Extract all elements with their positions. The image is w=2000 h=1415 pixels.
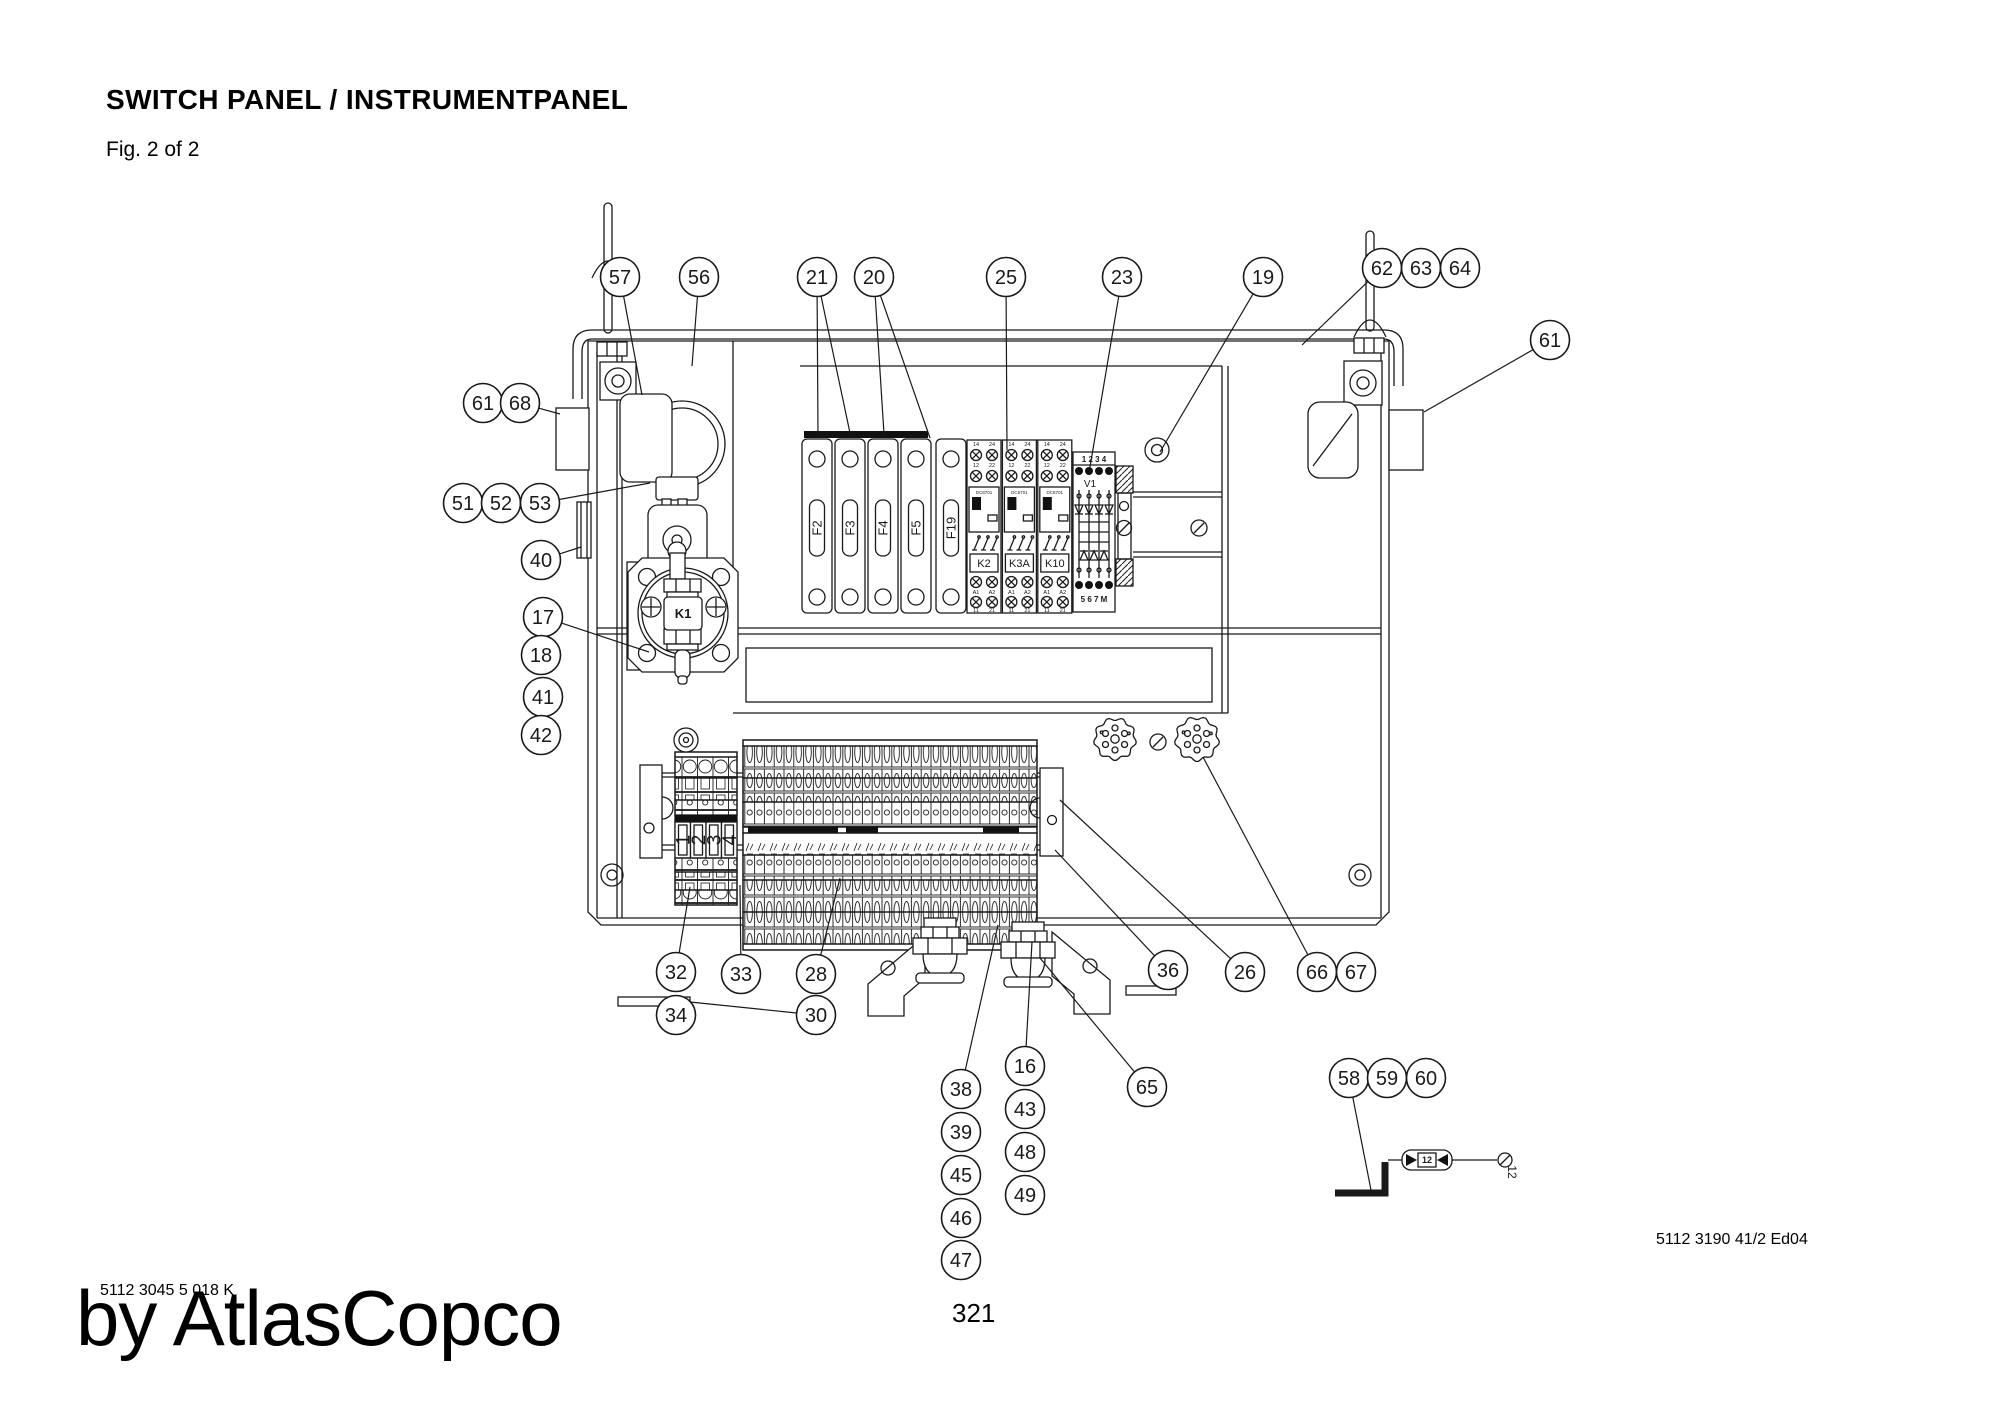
callout-51: 51 xyxy=(444,484,483,523)
corner-bolt-left xyxy=(592,203,636,400)
svg-text:24: 24 xyxy=(1060,442,1066,448)
callout-number: 18 xyxy=(530,645,552,667)
callout-67: 67 xyxy=(1337,953,1376,992)
page-number: 321 xyxy=(952,1298,995,1329)
circular-connector xyxy=(1175,718,1220,762)
callout-56: 56 xyxy=(680,258,719,367)
svg-text:22: 22 xyxy=(1024,463,1030,469)
callout-45: 45 xyxy=(942,1156,981,1195)
cable-gland-left xyxy=(913,918,967,983)
relay-module: 14241222DC8701K3AA1A21121 xyxy=(1002,440,1036,614)
callout-63: 63 xyxy=(1402,249,1441,288)
relay-module: 14241222DC8701K10A1A21121 xyxy=(1038,440,1072,614)
svg-text:K1: K1 xyxy=(675,606,692,621)
page-title: SWITCH PANEL / INSTRUMENTPANEL xyxy=(106,84,628,116)
svg-text:F19: F19 xyxy=(944,517,959,539)
svg-text:21: 21 xyxy=(1060,608,1066,614)
svg-text:14: 14 xyxy=(1044,442,1050,448)
callout-number: 21 xyxy=(806,267,828,289)
svg-text:22: 22 xyxy=(1060,463,1066,469)
callout-number: 17 xyxy=(532,607,554,629)
svg-text:F5: F5 xyxy=(909,520,924,535)
svg-text:12: 12 xyxy=(1422,1155,1432,1165)
callout-20: 20 xyxy=(855,258,931,439)
callout-number: 43 xyxy=(1014,1099,1036,1121)
callout-number: 16 xyxy=(1014,1056,1036,1078)
svg-text:24: 24 xyxy=(989,442,995,448)
handle-loop xyxy=(620,394,725,509)
callout-number: 45 xyxy=(950,1165,972,1187)
callout-41: 41 xyxy=(524,678,563,717)
svg-text:11: 11 xyxy=(1044,608,1050,614)
callout-number: 39 xyxy=(950,1122,972,1144)
callout-number: 26 xyxy=(1234,962,1256,984)
fuse-holder: F4 xyxy=(868,439,898,613)
doc-number-right: 5112 3190 41/2 Ed04 xyxy=(1656,1231,1808,1249)
callout-number: 58 xyxy=(1338,1068,1360,1090)
callout-number: 38 xyxy=(950,1079,972,1101)
callout-19: 19 xyxy=(1160,258,1283,453)
svg-text:V1: V1 xyxy=(1084,479,1097,490)
callout-number: 61 xyxy=(472,393,494,415)
callout-number: 19 xyxy=(1252,267,1274,289)
callout-number: 40 xyxy=(530,550,552,572)
relay-modules: 14241222DC8701K2A1A2112114241222DC8701K3… xyxy=(967,440,1072,614)
circular-connectors xyxy=(1094,718,1220,762)
callout-number: 42 xyxy=(530,725,552,747)
svg-text:21: 21 xyxy=(1024,608,1030,614)
fuse-holder: F3 xyxy=(835,439,865,613)
svg-text:DC8701: DC8701 xyxy=(1011,490,1028,495)
svg-text:11: 11 xyxy=(1009,608,1015,614)
callout-number: 34 xyxy=(665,1005,687,1027)
svg-text:A1: A1 xyxy=(973,590,980,596)
svg-text:F2: F2 xyxy=(810,520,825,535)
svg-text:14: 14 xyxy=(973,442,979,448)
svg-text:K2: K2 xyxy=(977,558,990,570)
svg-text:DC8701: DC8701 xyxy=(976,490,993,495)
cable-gland-right xyxy=(1001,922,1055,987)
callout-64: 64 xyxy=(1441,249,1480,288)
diode-module-v1: 1 2 3 4V15 6 7 M xyxy=(1073,452,1133,612)
callout-52: 52 xyxy=(482,484,521,523)
switch-panel-drawing: F2F3F4F5F19 14241222DC8701K2A1A211211424… xyxy=(0,0,2000,1415)
callout-18: 18 xyxy=(522,636,561,675)
callout-number: 49 xyxy=(1014,1185,1036,1207)
callout-number: 63 xyxy=(1410,258,1432,280)
svg-text:21: 21 xyxy=(989,608,995,614)
callout-34: 34 xyxy=(657,996,696,1035)
callout-42: 42 xyxy=(522,716,561,755)
callout-48: 48 xyxy=(1006,1133,1045,1172)
fuse-bus-bar xyxy=(804,431,928,438)
svg-text:12: 12 xyxy=(1008,463,1014,469)
svg-text:11: 11 xyxy=(973,608,979,614)
svg-text:12: 12 xyxy=(973,463,979,469)
callout-number: 46 xyxy=(950,1208,972,1230)
svg-text:K3A: K3A xyxy=(1009,558,1030,570)
svg-text:4: 4 xyxy=(720,834,741,845)
callout-number: 57 xyxy=(609,267,631,289)
fuse-holder: F2 xyxy=(802,439,832,613)
circular-connector xyxy=(1094,719,1136,761)
callout-number: 56 xyxy=(688,267,710,289)
callout-59: 59 xyxy=(1368,1059,1407,1098)
svg-text:A1: A1 xyxy=(1008,590,1015,596)
callout-number: 41 xyxy=(532,687,554,709)
callout-number: 65 xyxy=(1136,1077,1158,1099)
relay-module: 14241222DC8701K2A1A21121 xyxy=(967,440,1001,614)
svg-text:12: 12 xyxy=(1044,463,1050,469)
callout-30: 30 xyxy=(690,996,836,1035)
callout-43: 43 xyxy=(1006,1090,1045,1129)
svg-text:DC8701: DC8701 xyxy=(1047,490,1064,495)
watermark: by AtlasCopco xyxy=(76,1278,562,1360)
terminal-block-1-4 xyxy=(674,728,737,905)
callout-number: 66 xyxy=(1306,962,1328,984)
callout-number: 52 xyxy=(490,493,512,515)
fuse-holders: F2F3F4F5F19 xyxy=(802,439,966,613)
svg-text:A2: A2 xyxy=(989,590,996,596)
callout-number: 68 xyxy=(509,393,531,415)
callout-number: 28 xyxy=(805,964,827,986)
figure-caption: Fig. 2 of 2 xyxy=(106,138,199,162)
callout-number: 61 xyxy=(1539,330,1561,352)
callout-47: 47 xyxy=(942,1241,981,1280)
fuse-holder: F5 xyxy=(901,439,931,613)
callout-number: 25 xyxy=(995,267,1017,289)
callout-number: 59 xyxy=(1376,1068,1398,1090)
callout-60: 60 xyxy=(1407,1059,1446,1098)
callout-number: 64 xyxy=(1449,258,1471,280)
callout-number: 47 xyxy=(950,1250,972,1272)
svg-text:A2: A2 xyxy=(1059,590,1066,596)
svg-text:22: 22 xyxy=(989,463,995,469)
callout-39: 39 xyxy=(942,1113,981,1152)
callout-number: 67 xyxy=(1345,962,1367,984)
callout-40: 40 xyxy=(522,541,582,580)
svg-text:14: 14 xyxy=(1008,442,1014,448)
callout-number: 48 xyxy=(1014,1142,1036,1164)
callout-number: 62 xyxy=(1371,258,1393,280)
callout-25: 25 xyxy=(987,258,1026,451)
callout-46: 46 xyxy=(942,1199,981,1238)
fuse-holder: F19 xyxy=(936,439,966,613)
svg-text:12: 12 xyxy=(1505,1165,1519,1179)
svg-text:1 2 3 4: 1 2 3 4 xyxy=(1082,455,1107,464)
callout-number: 20 xyxy=(863,267,885,289)
callout-61: 61 xyxy=(464,384,503,423)
svg-text:24: 24 xyxy=(1024,442,1030,448)
svg-text:F4: F4 xyxy=(876,520,891,535)
callout-21: 21 xyxy=(798,258,851,434)
svg-text:A2: A2 xyxy=(1024,590,1031,596)
svg-text:5 6 7 M: 5 6 7 M xyxy=(1081,595,1108,604)
callout-61: 61 xyxy=(1424,321,1570,413)
callout-number: 51 xyxy=(452,493,474,515)
callout-68: 68 xyxy=(501,384,561,423)
svg-text:A1: A1 xyxy=(1043,590,1050,596)
callout-49: 49 xyxy=(1006,1176,1045,1215)
callout-66: 66 xyxy=(1203,757,1337,992)
callout-58: 58 xyxy=(1330,1059,1372,1191)
parts-catalog-page: { "header": { "title": "SWITCH PANEL / I… xyxy=(0,0,2000,1415)
callout-number: 32 xyxy=(665,962,687,984)
svg-text:F3: F3 xyxy=(843,520,858,535)
terminal-strip xyxy=(743,740,1037,950)
callout-number: 53 xyxy=(529,493,551,515)
callout-number: 60 xyxy=(1415,1068,1437,1090)
callout-number: 36 xyxy=(1157,960,1179,982)
callout-number: 23 xyxy=(1111,267,1133,289)
callout-number: 33 xyxy=(730,964,752,986)
svg-text:K10: K10 xyxy=(1045,558,1065,570)
callout-number: 30 xyxy=(805,1005,827,1027)
callout-23: 23 xyxy=(1090,258,1142,468)
